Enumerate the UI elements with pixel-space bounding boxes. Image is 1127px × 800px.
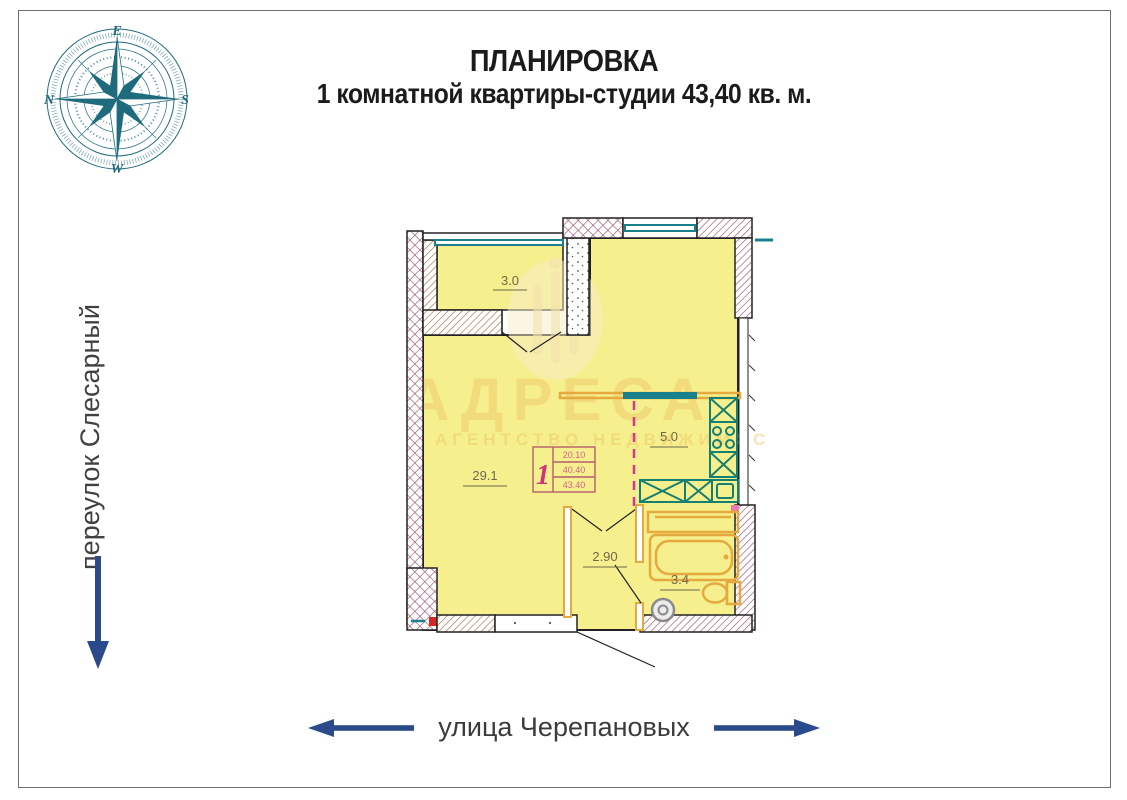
loggia-window: [435, 240, 563, 245]
apartment-number: 1: [536, 460, 550, 491]
apartment-area-row2: 40.40: [563, 465, 586, 475]
compass-letter-bottom: W: [111, 162, 125, 174]
railing-right: [739, 318, 748, 505]
floorplan-drawing: АДРЕСА АГЕНТСТВО НЕДВИЖИМОС: [405, 205, 775, 675]
wall-bottom-left: [437, 615, 495, 632]
area-label-loggia: 3.0: [501, 273, 519, 288]
watermark-word: АДРЕСА: [406, 366, 714, 433]
kitchen-counter-teal: [623, 392, 697, 399]
street-arrow-right-icon: [714, 719, 820, 737]
bathroom-wall-lower: [636, 603, 643, 630]
area-label-kitchen: 5.0: [660, 429, 678, 444]
wall-loggia-bottom: [423, 310, 502, 335]
window-top: [625, 225, 695, 231]
washing-machine: [652, 599, 674, 621]
plan-mark-pink: [731, 505, 739, 511]
apartment-area-row3: 43.40: [563, 480, 586, 490]
entrance-door-swing: [577, 632, 655, 667]
wall-right-upper: [735, 238, 752, 318]
street-row-bottom: улица Черепановых: [18, 712, 1110, 743]
wall-loggia-top: [423, 233, 563, 240]
hallway-wall: [564, 507, 571, 617]
street-arrow-down-icon: [86, 556, 110, 670]
compass-letter-top: E: [111, 24, 121, 39]
street-arrow-left-icon: [308, 719, 414, 737]
area-label-living-room: 29.1: [472, 468, 497, 483]
bathroom-wall-upper: [636, 505, 643, 562]
title-line-2: 1 комнатной квартиры-студии 43,40 кв. м.: [317, 78, 812, 109]
wall-left: [407, 231, 423, 623]
wall-column-center: [567, 238, 589, 335]
railing-ticks: [749, 335, 755, 491]
title-line-1: ПЛАНИРОВКА: [470, 44, 658, 78]
street-label-bottom: улица Черепановых: [438, 712, 690, 743]
area-label-bathroom: 3.4: [671, 572, 689, 587]
wall-top-right: [697, 218, 752, 238]
wall-top-left: [563, 218, 623, 238]
floorplan-page: E S W N ПЛАНИРОВКА 1 комнатной квартиры-…: [0, 0, 1127, 800]
area-label-hallway: 2.90: [592, 549, 617, 564]
apartment-area-row1: 20.10: [563, 450, 586, 460]
page-title: ПЛАНИРОВКА 1 комнатной квартиры-студии 4…: [18, 44, 1110, 109]
